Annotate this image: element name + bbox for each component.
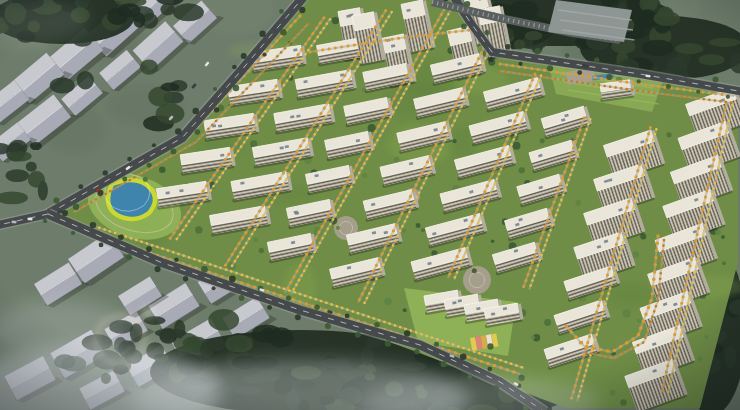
rendering-stage [0,0,740,410]
vignette-overlay [0,0,740,410]
masterplan-aerial-rendering [0,0,740,410]
